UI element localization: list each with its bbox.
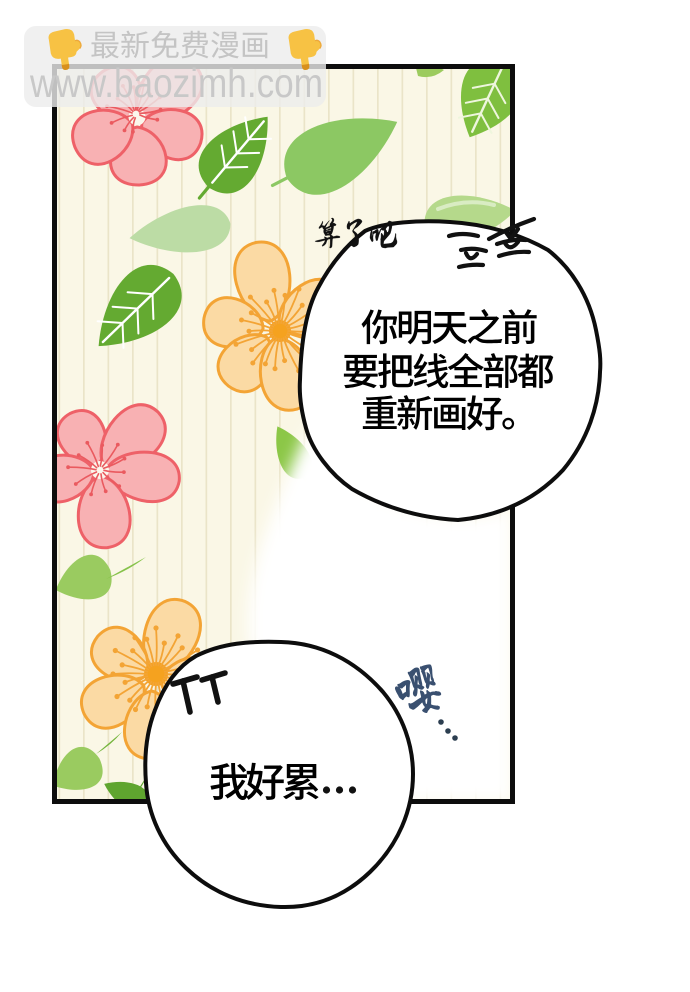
svg-text:www.baozimh.com: www.baozimh.com <box>29 60 323 106</box>
